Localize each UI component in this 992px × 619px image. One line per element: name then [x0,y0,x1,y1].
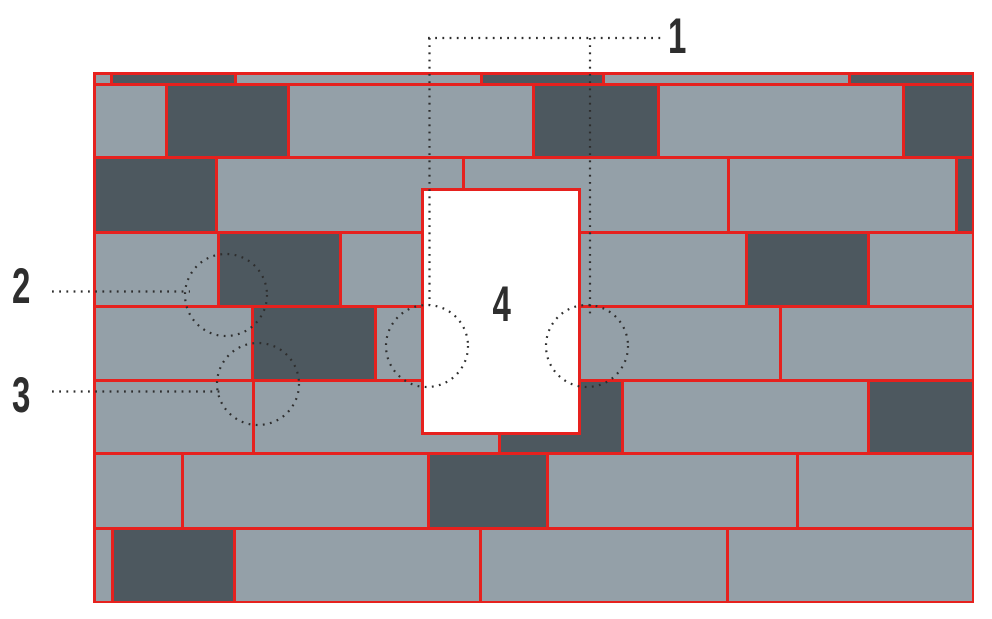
window-label: 4 [492,279,510,329]
brick [905,86,972,156]
brick [168,86,287,156]
brick [96,234,217,305]
brick [870,382,972,452]
brick [236,530,479,601]
brick [660,86,902,156]
callout-label-3: 3 [12,370,30,420]
brick [748,234,867,305]
brick [113,75,234,83]
brick [254,308,374,379]
brick [535,86,657,156]
brick [549,455,796,527]
brick [96,455,181,527]
brick [96,86,165,156]
brick [96,382,252,452]
brick [96,75,110,83]
brick [96,530,111,601]
brick [482,530,726,601]
callout-label-2: 2 [12,261,30,311]
brick [730,159,955,231]
brick [799,455,972,527]
brick [782,308,972,379]
brick [958,159,972,231]
brick [729,530,972,601]
callout-label-1: 1 [668,11,686,61]
brick [237,75,480,83]
brick [96,308,251,379]
window-opening: 4 [421,188,581,435]
brick [114,530,233,601]
brick [624,382,867,452]
brick [430,455,546,527]
brick [290,86,532,156]
brick [96,159,215,231]
brick [483,75,602,83]
brick [220,234,339,305]
brick [851,75,972,83]
brick [184,455,427,527]
brick [870,234,972,305]
diagram-stage: 4 1 2 3 [0,0,992,619]
brick [605,75,848,83]
